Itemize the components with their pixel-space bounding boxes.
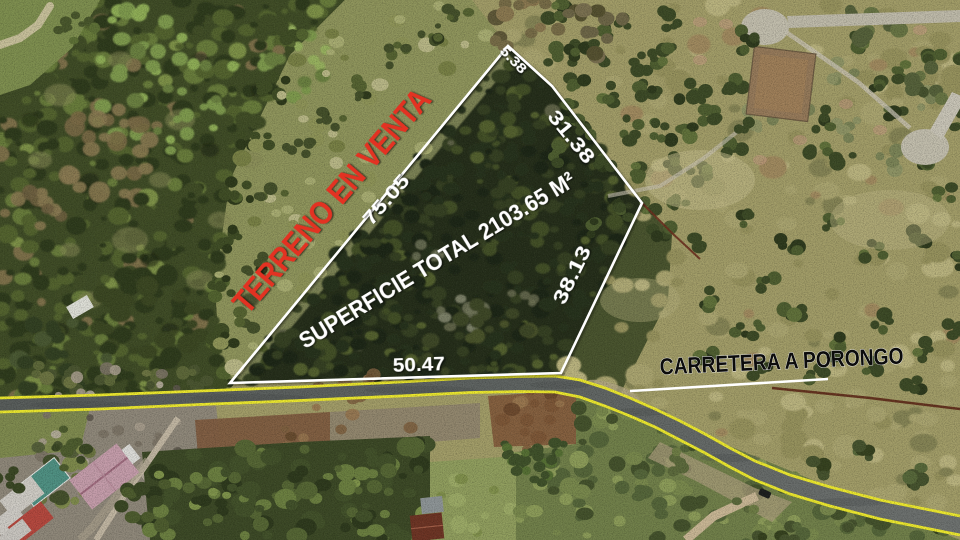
- svg-text:50.47: 50.47: [392, 354, 445, 377]
